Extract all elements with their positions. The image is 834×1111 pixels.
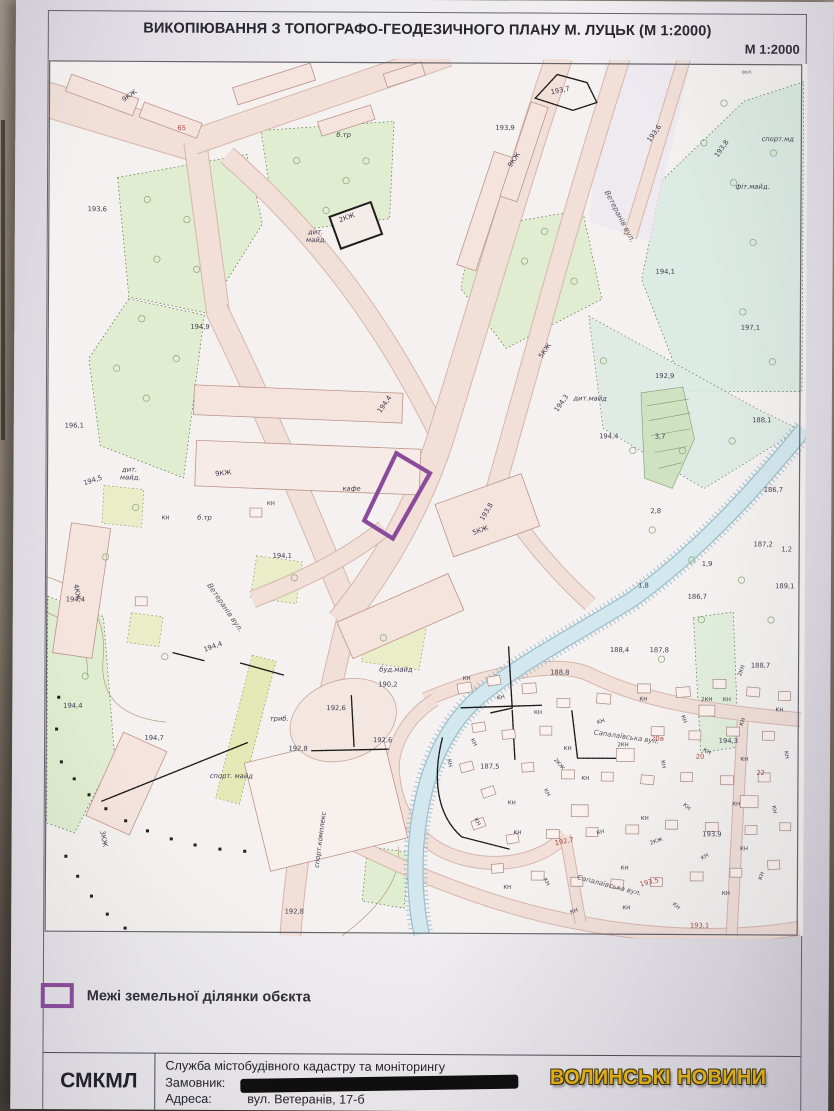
svg-text:КН: КН <box>722 891 730 897</box>
svg-text:190,2: 190,2 <box>378 681 397 689</box>
svg-text:КН: КН <box>564 746 572 752</box>
svg-text:193,9: 193,9 <box>702 830 721 838</box>
svg-text:КН: КН <box>508 800 516 806</box>
svg-text:КН: КН <box>162 515 170 521</box>
page-title: ВИКОПІЮВАННЯ З ТОПОГРАФО-ГЕОДЕЗИЧНОГО ПЛ… <box>49 20 806 40</box>
svg-text:188,4: 188,4 <box>610 646 629 654</box>
address-row: Адреса: вул. Ветеранів, 17-б <box>165 1091 800 1111</box>
sheet-frame: ВИКОПІЮВАННЯ З ТОПОГРАФО-ГЕОДЕЗИЧНОГО ПЛ… <box>42 10 807 1111</box>
photographed-document: ВИКОПІЮВАННЯ З ТОПОГРАФО-ГЕОДЕЗИЧНОГО ПЛ… <box>0 0 834 1111</box>
svg-text:194,3: 194,3 <box>719 737 738 745</box>
svg-text:майд.: майд. <box>120 474 140 482</box>
svg-text:187,2: 187,2 <box>753 540 772 548</box>
svg-text:194,1: 194,1 <box>273 552 292 560</box>
svg-text:22: 22 <box>756 769 765 777</box>
svg-text:спорт.мд: спорт.мд <box>762 135 795 143</box>
svg-text:194,4: 194,4 <box>599 432 618 440</box>
svg-text:187,8: 187,8 <box>650 646 669 654</box>
svg-text:197,1: 197,1 <box>741 324 760 332</box>
svg-text:189,1: 189,1 <box>775 582 794 590</box>
svg-text:65: 65 <box>177 124 186 132</box>
svg-text:188,1: 188,1 <box>752 416 771 424</box>
svg-text:2,8: 2,8 <box>650 507 661 515</box>
svg-text:б.тр: б.тр <box>336 131 351 139</box>
svg-text:193,1: 193,1 <box>690 922 709 930</box>
svg-text:спорт. майд: спорт. майд <box>210 772 253 780</box>
svg-text:б.тр: б.тр <box>197 514 212 522</box>
legend-label: Межі земельної ділянки обєкта <box>87 988 311 1005</box>
parcel-legend-swatch <box>41 983 74 1008</box>
svg-text:2КН: 2КН <box>617 742 628 748</box>
svg-text:КН: КН <box>463 676 471 682</box>
scale-label: М 1:2000 <box>745 42 800 57</box>
svg-text:КН: КН <box>723 697 731 703</box>
svg-text:буд.майд: буд.майд <box>379 666 413 674</box>
svg-text:1,2: 1,2 <box>781 546 792 554</box>
svg-text:КН: КН <box>622 905 630 911</box>
svg-text:триб.: триб. <box>270 715 289 723</box>
svg-text:194,9: 194,9 <box>190 323 209 331</box>
svg-text:188,7: 188,7 <box>751 662 770 670</box>
svg-text:192,8: 192,8 <box>288 745 307 753</box>
svg-text:кафе: кафе <box>342 485 360 493</box>
svg-text:194,1: 194,1 <box>656 268 675 276</box>
address-label: Адреса: <box>165 1092 212 1106</box>
svg-text:3,7: 3,7 <box>655 433 666 441</box>
svg-text:192,6: 192,6 <box>326 704 345 712</box>
svg-text:КН: КН <box>514 830 522 836</box>
svg-text:186,7: 186,7 <box>688 593 707 601</box>
svg-text:дит.майд: дит.майд <box>572 394 607 402</box>
svg-text:КН: КН <box>503 885 511 891</box>
svg-text:2КН: 2КН <box>701 697 712 703</box>
svg-text:194,7: 194,7 <box>144 734 163 742</box>
svg-text:193,6: 193,6 <box>88 205 107 213</box>
svg-text:196,1: 196,1 <box>65 422 84 430</box>
svg-text:192,9: 192,9 <box>655 372 674 380</box>
svg-text:КН: КН <box>621 866 629 872</box>
org-abbr: СМКМЛ <box>43 1053 155 1110</box>
svg-text:фіт.майд.: фіт.майд. <box>735 183 769 191</box>
svg-text:КН: КН <box>740 757 748 763</box>
paper-sheet: ВИКОПІЮВАННЯ З ТОПОГРАФО-ГЕОДЕЗИЧНОГО ПЛ… <box>10 0 834 1111</box>
customer-label: Замовник: <box>165 1075 225 1089</box>
svg-text:186,7: 186,7 <box>764 486 783 494</box>
svg-text:вол.: вол. <box>742 69 753 75</box>
svg-text:КН: КН <box>641 816 649 822</box>
svg-text:КН: КН <box>740 846 748 852</box>
svg-text:КН: КН <box>639 697 647 703</box>
svg-text:КН: КН <box>581 776 589 782</box>
svg-text:193,9: 193,9 <box>495 124 514 132</box>
address-value: вул. Ветеранів, 17-б <box>247 1092 364 1107</box>
svg-text:КН: КН <box>732 802 740 808</box>
title-band: ВИКОПІЮВАННЯ З ТОПОГРАФО-ГЕОДЕЗИЧНОГО ПЛ… <box>49 11 806 61</box>
redaction-bar <box>241 1075 519 1093</box>
svg-text:КН: КН <box>775 707 783 713</box>
svg-text:дит.: дит. <box>121 466 137 474</box>
svg-text:1,8: 1,8 <box>638 582 649 590</box>
svg-text:майд.: майд. <box>306 236 326 244</box>
svg-text:20: 20 <box>696 753 705 761</box>
svg-text:187,5: 187,5 <box>480 763 499 771</box>
svg-text:9КЖ: 9КЖ <box>215 468 233 478</box>
topographic-map: вол.193,6194,9196,1194,5194,4194,1194,71… <box>44 57 808 939</box>
svg-text:КН: КН <box>267 501 275 507</box>
svg-text:192,6: 192,6 <box>373 736 392 744</box>
svg-text:192,8: 192,8 <box>285 908 304 916</box>
legend: Межі земельної ділянки обєкта <box>41 983 311 1009</box>
svg-text:1,9: 1,9 <box>702 560 713 568</box>
svg-text:188,8: 188,8 <box>550 669 569 677</box>
svg-text:дит.: дит. <box>307 228 323 236</box>
svg-text:194,4: 194,4 <box>63 702 82 710</box>
news-watermark: ВОЛИНСЬКІ НОВИНИ <box>550 1066 766 1090</box>
svg-text:КН: КН <box>534 710 542 716</box>
